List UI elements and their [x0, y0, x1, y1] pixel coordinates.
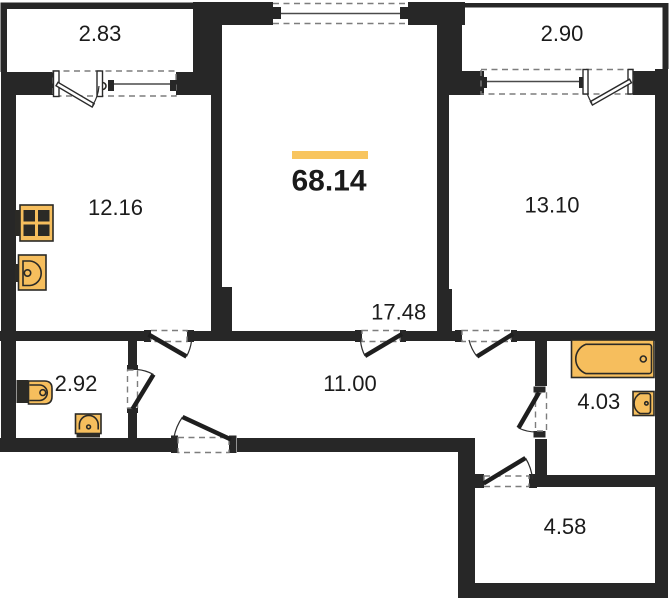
- svg-text:68.14: 68.14: [291, 165, 366, 198]
- svg-text:17.48: 17.48: [371, 300, 426, 325]
- svg-text:2.83: 2.83: [79, 21, 122, 46]
- svg-text:12.16: 12.16: [88, 195, 143, 220]
- svg-text:2.92: 2.92: [55, 371, 98, 396]
- svg-text:11.00: 11.00: [323, 371, 376, 396]
- svg-text:2.90: 2.90: [541, 21, 584, 46]
- svg-text:4.03: 4.03: [577, 389, 620, 414]
- svg-text:4.58: 4.58: [544, 514, 587, 539]
- svg-text:13.10: 13.10: [524, 193, 579, 218]
